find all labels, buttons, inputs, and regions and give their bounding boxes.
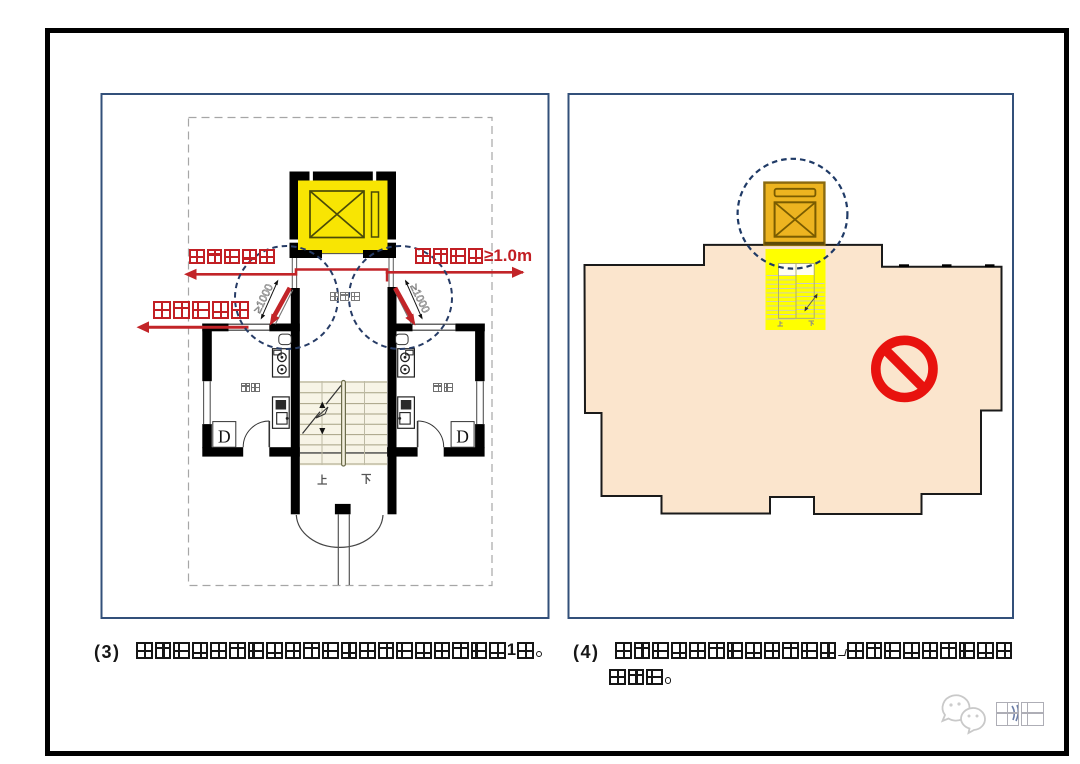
svg-text:D: D	[456, 427, 469, 447]
svg-text:D: D	[218, 427, 231, 447]
